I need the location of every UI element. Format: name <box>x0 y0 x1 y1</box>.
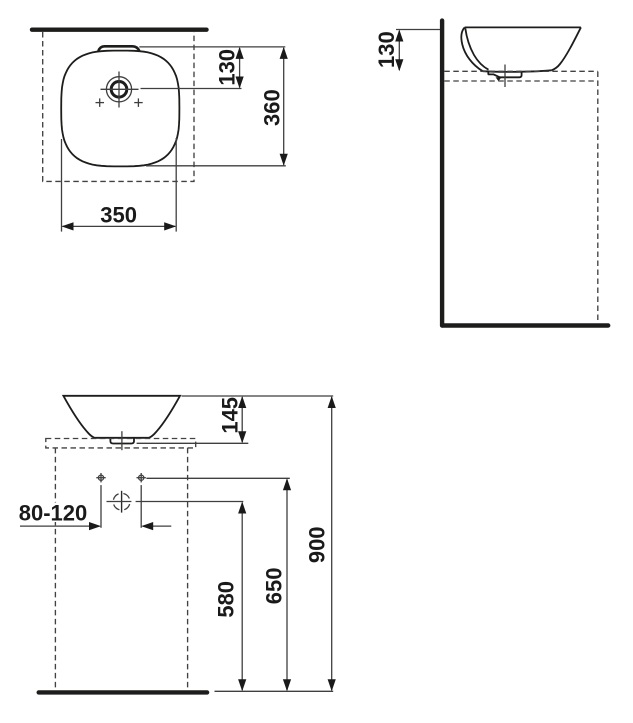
svg-text:900: 900 <box>305 526 330 563</box>
svg-text:650: 650 <box>261 568 286 605</box>
svg-text:130: 130 <box>214 49 239 86</box>
svg-text:145: 145 <box>218 397 243 434</box>
svg-text:80-120: 80-120 <box>19 501 88 526</box>
svg-text:360: 360 <box>259 89 284 126</box>
svg-text:580: 580 <box>214 581 239 618</box>
svg-text:350: 350 <box>100 202 137 227</box>
svg-text:130: 130 <box>374 31 399 68</box>
